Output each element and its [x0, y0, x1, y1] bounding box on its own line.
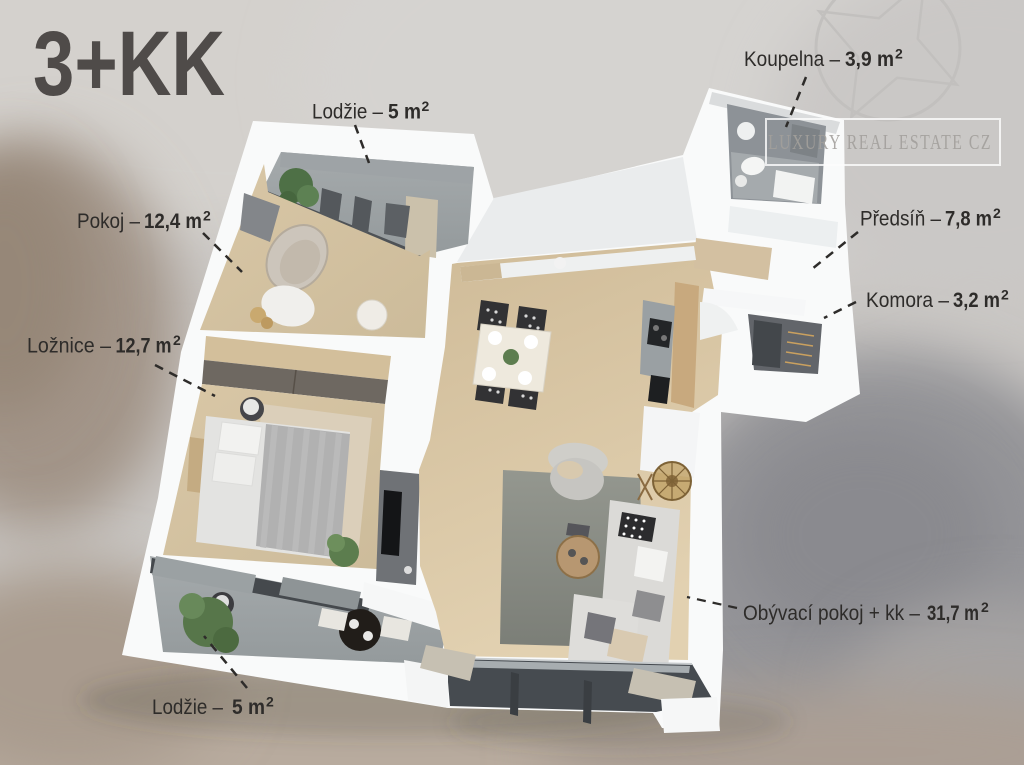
- svg-text:2: 2: [422, 98, 430, 114]
- svg-text:2: 2: [1001, 287, 1009, 303]
- svg-text:Obývací pokoj + kk –: Obývací pokoj + kk –: [743, 601, 920, 625]
- svg-text:2: 2: [203, 208, 211, 224]
- svg-text:5 m: 5 m: [388, 100, 421, 124]
- svg-text:2: 2: [266, 694, 274, 710]
- svg-text:2: 2: [993, 205, 1001, 221]
- svg-text:2: 2: [173, 332, 181, 348]
- svg-text:Lodžie –: Lodžie –: [312, 100, 383, 124]
- svg-text:3,2 m: 3,2 m: [953, 288, 1000, 312]
- svg-text:7,8 m: 7,8 m: [945, 207, 992, 231]
- svg-text:31,7 m: 31,7 m: [927, 601, 979, 625]
- svg-text:Komora –: Komora –: [866, 288, 949, 312]
- svg-text:Koupelna –: Koupelna –: [744, 47, 840, 71]
- svg-text:5 m: 5 m: [232, 695, 265, 719]
- svg-text:3,9 m: 3,9 m: [845, 47, 894, 71]
- svg-text:2: 2: [981, 599, 989, 615]
- svg-text:Předsíň –: Předsíň –: [860, 207, 941, 231]
- svg-text:Lodžie –: Lodžie –: [152, 695, 223, 719]
- svg-text:Ložnice –: Ložnice –: [27, 334, 111, 358]
- svg-text:12,4 m: 12,4 m: [144, 209, 202, 233]
- svg-text:LUXURY REAL ESTATE CZ: LUXURY REAL ESTATE CZ: [768, 130, 992, 154]
- svg-text:2: 2: [895, 46, 903, 62]
- svg-text:3+KK: 3+KK: [33, 13, 225, 115]
- svg-text:Pokoj –: Pokoj –: [77, 209, 140, 233]
- svg-text:12,7 m: 12,7 m: [116, 334, 172, 358]
